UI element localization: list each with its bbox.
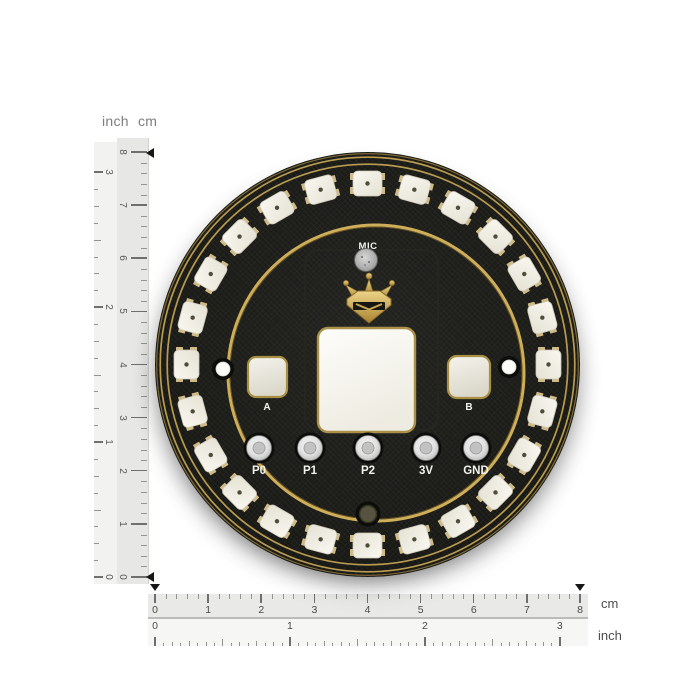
ruler-tick <box>172 642 173 646</box>
ruler-tick <box>131 417 147 419</box>
ruler-tick <box>509 642 510 646</box>
mounting-hole-left <box>212 358 234 380</box>
ruler-tick <box>131 364 147 366</box>
pin-label-P0: P0 <box>252 465 266 477</box>
ruler-tick <box>501 643 502 646</box>
ruler-tick <box>141 301 147 302</box>
ruler-number: 5 <box>412 604 430 616</box>
ruler-tick <box>450 643 451 646</box>
mounting-hole-bottom <box>356 502 381 527</box>
measure-marker-bottom-right <box>575 584 585 591</box>
pin-ring-GND <box>461 433 492 464</box>
ruler-number: 6 <box>116 251 130 265</box>
button-b <box>448 356 490 398</box>
ruler-tick <box>492 639 493 646</box>
bottom-ruler-cm-band: 012345678 <box>148 594 588 619</box>
ruler-tick <box>141 290 147 291</box>
ruler-tick <box>346 594 347 599</box>
ruler-tick <box>495 594 496 599</box>
ruler-tick <box>506 594 507 599</box>
ruler-tick <box>141 216 147 217</box>
ruler-tick <box>141 280 147 281</box>
rgb-led <box>526 391 559 431</box>
ruler-tick <box>516 594 517 599</box>
ruler-tick <box>94 493 98 494</box>
ruler-tick <box>389 594 390 599</box>
ruler-tick <box>141 333 147 334</box>
ruler-tick <box>410 594 411 599</box>
ruler-tick <box>94 459 98 460</box>
ruler-tick <box>349 643 350 646</box>
ruler-tick <box>484 643 485 646</box>
ruler-tick <box>141 237 147 238</box>
ruler-number: 5 <box>116 304 130 318</box>
button-b-label: B <box>465 402 472 413</box>
elecfreaks-logo <box>343 273 394 323</box>
rgb-led <box>218 471 260 513</box>
ruler-tick <box>94 223 98 224</box>
ruler-tick <box>94 375 101 376</box>
rgb-led <box>301 523 341 556</box>
ruler-tick <box>163 643 164 646</box>
rgb-led <box>526 298 559 338</box>
ruler-number: 0 <box>116 570 130 584</box>
ruler-tick <box>141 407 147 408</box>
ruler-tick <box>260 594 262 603</box>
rgb-led <box>301 173 341 206</box>
ruler-tick <box>141 386 147 387</box>
ruler-tick <box>94 425 98 426</box>
ruler-tick <box>94 290 98 291</box>
bottom-ruler-inch-band: 0123 <box>148 619 588 646</box>
ruler-tick <box>289 637 291 646</box>
ruler-tick <box>538 594 539 599</box>
ruler-tick <box>180 643 181 646</box>
rgb-led <box>176 298 209 338</box>
ruler-tick <box>94 358 98 359</box>
ruler-tick <box>94 391 98 392</box>
ruler-tick <box>141 545 147 546</box>
left-ruler: 0123456780123 <box>94 138 148 584</box>
ruler-tick <box>304 594 305 599</box>
ruler-tick <box>94 206 99 207</box>
pin-label-P1: P1 <box>303 465 318 477</box>
pin-ring-P1 <box>295 433 326 464</box>
ruler-number: 1 <box>102 435 116 449</box>
ruler-number: 8 <box>571 604 589 616</box>
ruler-number: 2 <box>252 604 270 616</box>
pin-ring-P2 <box>353 433 384 464</box>
ruler-tick <box>239 642 240 646</box>
board-graphics: MIC A <box>155 152 580 577</box>
ruler-tick <box>141 439 147 440</box>
ruler-tick <box>535 643 536 646</box>
ruler-tick <box>198 594 199 599</box>
pin-label-3V: 3V <box>419 465 433 477</box>
ruler-tick <box>141 450 147 451</box>
ruler-number: 4 <box>116 358 130 372</box>
ruler-tick <box>367 594 369 603</box>
ruler-number: 2 <box>416 620 434 632</box>
ruler-tick <box>141 184 147 185</box>
ruler-tick <box>141 481 147 482</box>
ruler-tick <box>526 641 527 647</box>
rgb-led <box>176 391 209 431</box>
ruler-tick <box>141 375 147 376</box>
ruler-tick <box>166 594 167 599</box>
rgb-led <box>218 215 260 257</box>
pin-label-GND: GND <box>463 465 489 477</box>
ruler-number: 7 <box>116 198 130 212</box>
ruler-tick <box>197 643 198 646</box>
ruler-tick <box>141 513 147 514</box>
ruler-tick <box>222 639 223 646</box>
ruler-number: 1 <box>281 620 299 632</box>
ruler-tick <box>399 594 400 599</box>
ruler-tick <box>551 643 552 646</box>
ruler-tick <box>341 642 342 646</box>
ruler-number: 7 <box>518 604 536 616</box>
ruler-tick <box>131 523 147 525</box>
rgb-led <box>536 347 561 382</box>
ruler-tick <box>219 594 220 599</box>
ruler-tick <box>484 594 485 599</box>
bottom-ruler-inch-unit: inch <box>598 628 622 643</box>
measure-marker-bottom-left <box>150 584 160 591</box>
rgb-led <box>394 173 434 206</box>
ruler-tick <box>332 643 333 646</box>
ruler-tick <box>548 594 549 599</box>
ruler-tick <box>240 594 241 599</box>
rgb-led <box>350 533 385 558</box>
left-ruler-inch-column <box>94 142 117 584</box>
ruler-tick <box>408 642 409 646</box>
rgb-led <box>394 523 434 556</box>
ruler-tick <box>131 151 147 153</box>
ruler-tick <box>94 273 99 274</box>
ruler-tick <box>131 470 147 472</box>
ruler-tick <box>473 594 475 603</box>
ruler-number: 3 <box>102 165 116 179</box>
ruler-tick <box>314 594 316 603</box>
ruler-number: 0 <box>102 570 116 584</box>
ruler-number: 2 <box>102 300 116 314</box>
ruler-tick <box>383 643 384 646</box>
ruler-tick <box>176 594 177 599</box>
ruler-number: 1 <box>116 517 130 531</box>
ruler-tick <box>400 643 401 646</box>
mounting-hole-right <box>498 356 520 378</box>
ruler-tick <box>189 641 190 647</box>
ruler-tick <box>248 643 249 646</box>
ruler-tick <box>357 594 358 599</box>
bottom-ruler: 012345678 0123 cm inch <box>148 584 648 648</box>
ruler-tick <box>431 594 432 599</box>
ruler-tick <box>229 594 230 599</box>
ruler-tick <box>256 641 257 647</box>
ruler-tick <box>282 643 283 646</box>
ruler-tick <box>131 257 147 259</box>
ruler-tick <box>94 526 98 527</box>
ruler-tick <box>293 594 294 599</box>
ruler-tick <box>336 594 337 599</box>
ruler-tick <box>94 189 98 190</box>
left-ruler-inch-header: inch <box>102 113 129 129</box>
ruler-tick <box>141 322 147 323</box>
ruler-tick <box>378 594 379 599</box>
ruler-tick <box>94 476 99 477</box>
ruler-tick <box>433 643 434 646</box>
ruler-tick <box>131 576 147 578</box>
ruler-tick <box>442 594 443 599</box>
ruler-tick <box>141 492 147 493</box>
button-a-label: A <box>263 402 270 413</box>
ruler-tick <box>543 642 544 646</box>
ruler-tick <box>187 594 188 599</box>
ruler-tick <box>131 311 147 313</box>
ruler-tick <box>141 460 147 461</box>
pin-label-P2: P2 <box>361 465 375 477</box>
ruler-tick <box>579 594 581 603</box>
ruler-tick <box>307 642 308 646</box>
ruler-tick <box>420 594 422 603</box>
ruler-tick <box>131 204 147 206</box>
ruler-tick <box>453 594 454 599</box>
left-ruler-cm-header: cm <box>138 113 157 129</box>
ruler-tick <box>374 642 375 646</box>
ruler-tick <box>94 510 101 511</box>
bottom-ruler-cm-unit: cm <box>601 596 618 611</box>
ruler-tick <box>251 594 252 599</box>
ruler-tick <box>298 643 299 646</box>
ruler-number: 3 <box>116 411 130 425</box>
ruler-tick <box>559 594 560 599</box>
ruler-tick <box>207 594 209 603</box>
ruler-tick <box>141 396 147 397</box>
ruler-number: 4 <box>359 604 377 616</box>
ruler-tick <box>231 643 232 646</box>
ruler-tick <box>283 594 284 599</box>
ruler-number: 0 <box>146 604 164 616</box>
ruler-number: 3 <box>551 620 569 632</box>
ruler-tick <box>141 173 147 174</box>
ruler-tick <box>141 163 147 164</box>
ruler-tick <box>141 195 147 196</box>
ruler-tick <box>94 341 99 342</box>
ruler-tick <box>265 643 266 646</box>
ruler-tick <box>416 643 417 646</box>
ruler-tick <box>141 566 147 567</box>
ruler-tick <box>94 560 98 561</box>
product-photo: inch cm 0123456780123 012345678 0123 cm … <box>0 0 700 700</box>
ruler-number: 1 <box>199 604 217 616</box>
ruler-number: 0 <box>146 620 164 632</box>
ruler-tick <box>475 642 476 646</box>
ruler-tick <box>442 642 443 646</box>
ruler-tick <box>463 594 464 599</box>
ruler-tick <box>518 643 519 646</box>
ruler-number: 8 <box>116 145 130 159</box>
ruler-tick <box>357 639 358 646</box>
ruler-tick <box>391 641 392 647</box>
ruler-tick <box>154 594 156 603</box>
ruler-tick <box>154 637 156 646</box>
mic-component <box>355 249 378 272</box>
circular-pcb: MIC A <box>155 152 580 577</box>
ruler-tick <box>141 269 147 270</box>
ruler-tick <box>324 641 325 647</box>
rgb-led <box>474 215 516 257</box>
ruler-number: 2 <box>116 464 130 478</box>
ruler-tick <box>141 354 147 355</box>
ruler-number: 6 <box>465 604 483 616</box>
ruler-tick <box>141 343 147 344</box>
ruler-tick <box>315 643 316 646</box>
ruler-tick <box>325 594 326 599</box>
rgb-led <box>350 171 385 196</box>
ruler-tick <box>526 594 528 603</box>
ruler-tick <box>559 637 561 646</box>
ruler-tick <box>272 594 273 599</box>
ruler-tick <box>94 408 99 409</box>
ruler-tick <box>141 503 147 504</box>
button-a <box>248 357 287 397</box>
pin-ring-3V <box>411 433 442 464</box>
ruler-tick <box>569 594 570 599</box>
display-window <box>318 328 415 432</box>
ruler-tick <box>141 248 147 249</box>
pin-ring-P0 <box>244 433 275 464</box>
ruler-number: 3 <box>305 604 323 616</box>
ruler-tick <box>94 543 99 544</box>
ruler-tick <box>273 642 274 646</box>
ruler-tick <box>141 226 147 227</box>
ruler-tick <box>206 642 207 646</box>
ruler-tick <box>366 643 367 646</box>
ruler-tick <box>141 556 147 557</box>
ruler-tick <box>94 240 101 241</box>
ruler-tick <box>424 637 426 646</box>
ruler-tick <box>467 643 468 646</box>
ruler-tick <box>141 428 147 429</box>
rgb-led <box>174 347 199 382</box>
ruler-tick <box>94 324 98 325</box>
ruler-tick <box>214 643 215 646</box>
measure-marker-left-top <box>146 148 154 158</box>
ruler-tick <box>459 641 460 647</box>
ruler-tick <box>141 535 147 536</box>
ruler-tick <box>94 257 98 258</box>
measure-marker-left-bottom <box>146 572 154 582</box>
